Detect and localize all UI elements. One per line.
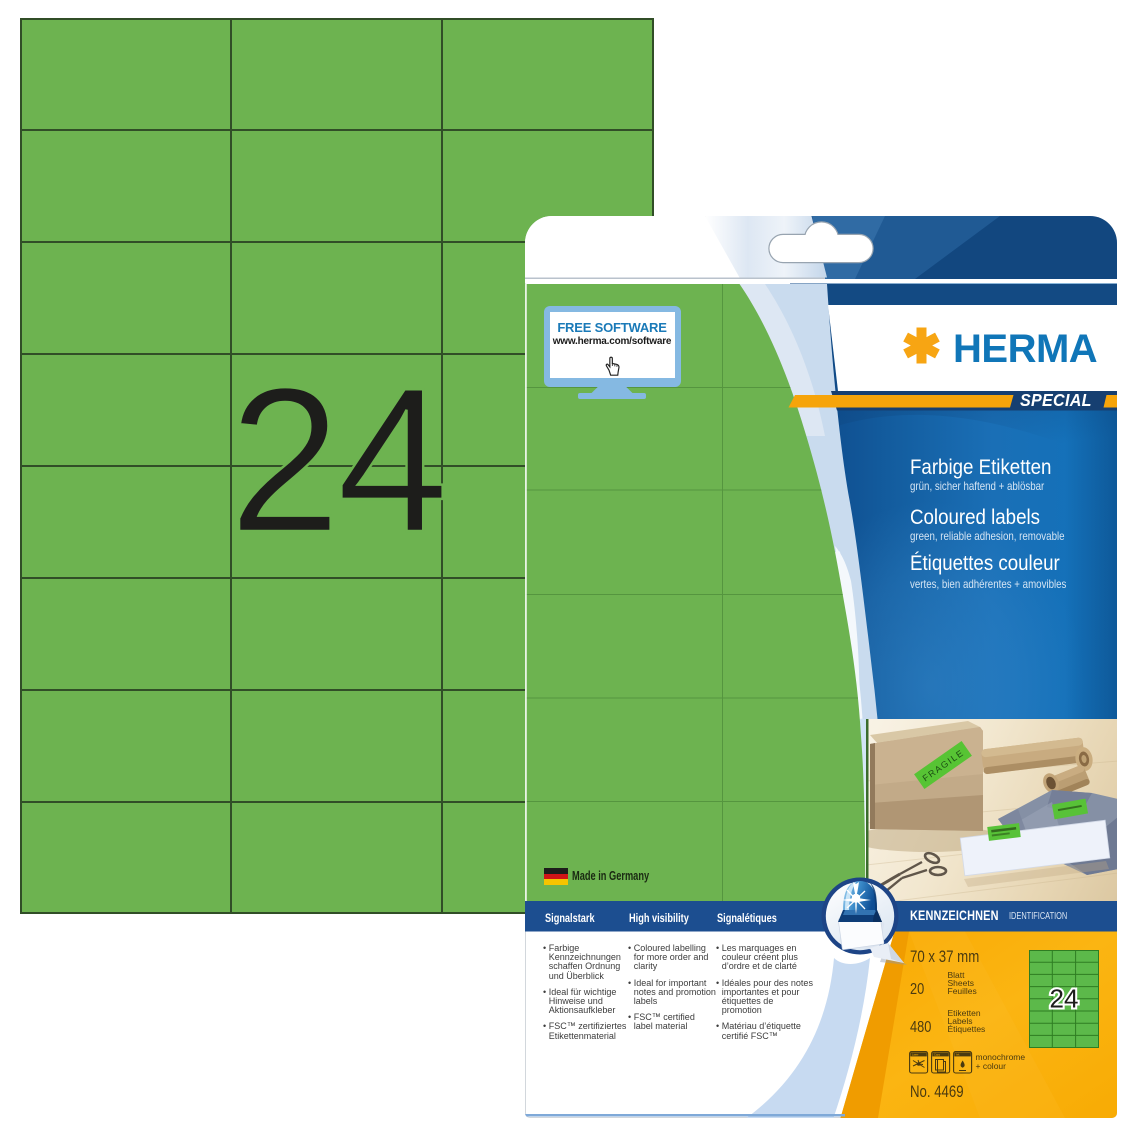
svg-text:24: 24 <box>1050 983 1079 1013</box>
svg-text:Copy: Copy <box>934 1053 941 1057</box>
svg-text:Laser: Laser <box>912 1053 919 1057</box>
